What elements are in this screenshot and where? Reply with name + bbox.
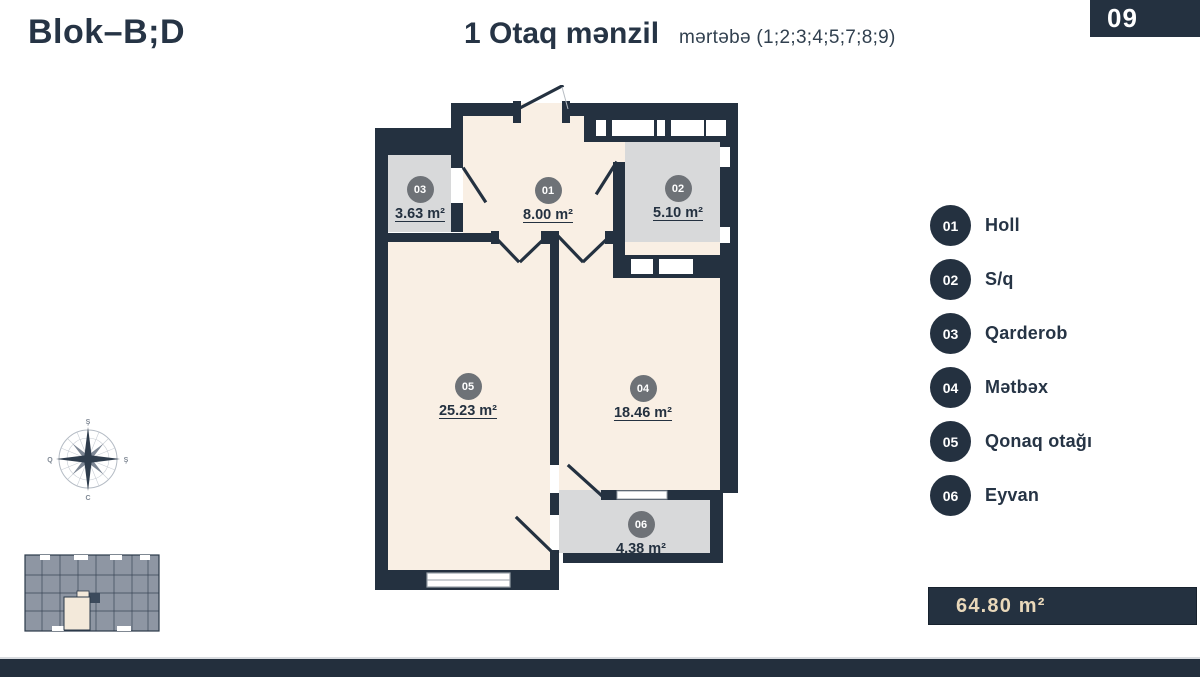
legend-label-02: S/q <box>985 269 1014 290</box>
compass-north-label: Ş <box>86 419 91 426</box>
compass-south-label: C <box>85 495 90 501</box>
room-area-03: 3.63 m² <box>360 206 480 222</box>
room-legend: 01 Holl 02 S/q 03 Qarderob 04 Mətbəx 05 … <box>930 205 1092 529</box>
room-area-05: 25.23 m² <box>408 403 528 419</box>
room-area-06: 4.38 m² <box>581 541 701 557</box>
room-area-04: 18.46 m² <box>583 405 703 421</box>
page-title: 1 Otaq mənzil mərtəbə (1;2;3;4;5;7;8;9) <box>464 17 896 51</box>
room-label-qarderob: 03 3.63 m² <box>360 176 480 222</box>
room-label-holl: 01 8.00 m² <box>488 177 608 223</box>
minimap-highlighted-unit <box>64 597 90 630</box>
legend-item-qarderob: 03 Qarderob <box>930 313 1092 354</box>
total-area-box: 64.80 m² <box>928 587 1197 625</box>
room-number-05: 05 <box>455 373 482 400</box>
room-number-01: 01 <box>535 177 562 204</box>
legend-number-01: 01 <box>930 205 971 246</box>
room-label-eyvan: 06 4.38 m² <box>581 511 701 557</box>
room-area-02: 5.10 m² <box>618 205 738 221</box>
legend-label-06: Eyvan <box>985 485 1039 506</box>
room-number-06: 06 <box>628 511 655 538</box>
room-number-02: 02 <box>665 175 692 202</box>
room-label-qonaq-otagi: 05 25.23 m² <box>408 373 528 419</box>
room-number-04: 04 <box>630 375 657 402</box>
legend-label-04: Mətbəx <box>985 377 1048 398</box>
bottom-bar <box>0 657 1200 677</box>
legend-number-04: 04 <box>930 367 971 408</box>
compass-west-label: Q <box>47 457 53 464</box>
page-number-badge: 09 <box>1090 0 1200 37</box>
legend-label-03: Qarderob <box>985 323 1068 344</box>
room-area-01: 8.00 m² <box>488 207 608 223</box>
legend-item-sq: 02 S/q <box>930 259 1092 300</box>
legend-label-05: Qonaq otağı <box>985 431 1092 452</box>
legend-number-06: 06 <box>930 475 971 516</box>
plan-title: 1 Otaq mənzil <box>464 17 659 51</box>
legend-number-05: 05 <box>930 421 971 462</box>
floors-label: mərtəbə (1;2;3;4;5;7;8;9) <box>679 27 896 49</box>
legend-item-metbex: 04 Mətbəx <box>930 367 1092 408</box>
block-title: Blok–B;D <box>28 13 185 52</box>
compass-east-label: Ş <box>124 457 129 464</box>
legend-number-02: 02 <box>930 259 971 300</box>
room-label-metbex: 04 18.46 m² <box>583 375 703 421</box>
building-footprint-minimap <box>22 547 162 637</box>
compass-major-star <box>56 427 120 491</box>
legend-number-03: 03 <box>930 313 971 354</box>
compass-rose-icon: Ş C Q Ş <box>46 417 130 501</box>
legend-label-01: Holl <box>985 215 1020 236</box>
room-number-03: 03 <box>407 176 434 203</box>
total-area-value: 64.80 m² <box>956 595 1046 617</box>
legend-item-eyvan: 06 Eyvan <box>930 475 1092 516</box>
legend-item-holl: 01 Holl <box>930 205 1092 246</box>
room-label-sq: 02 5.10 m² <box>618 175 738 221</box>
legend-item-qonaq-otagi: 05 Qonaq otağı <box>930 421 1092 462</box>
